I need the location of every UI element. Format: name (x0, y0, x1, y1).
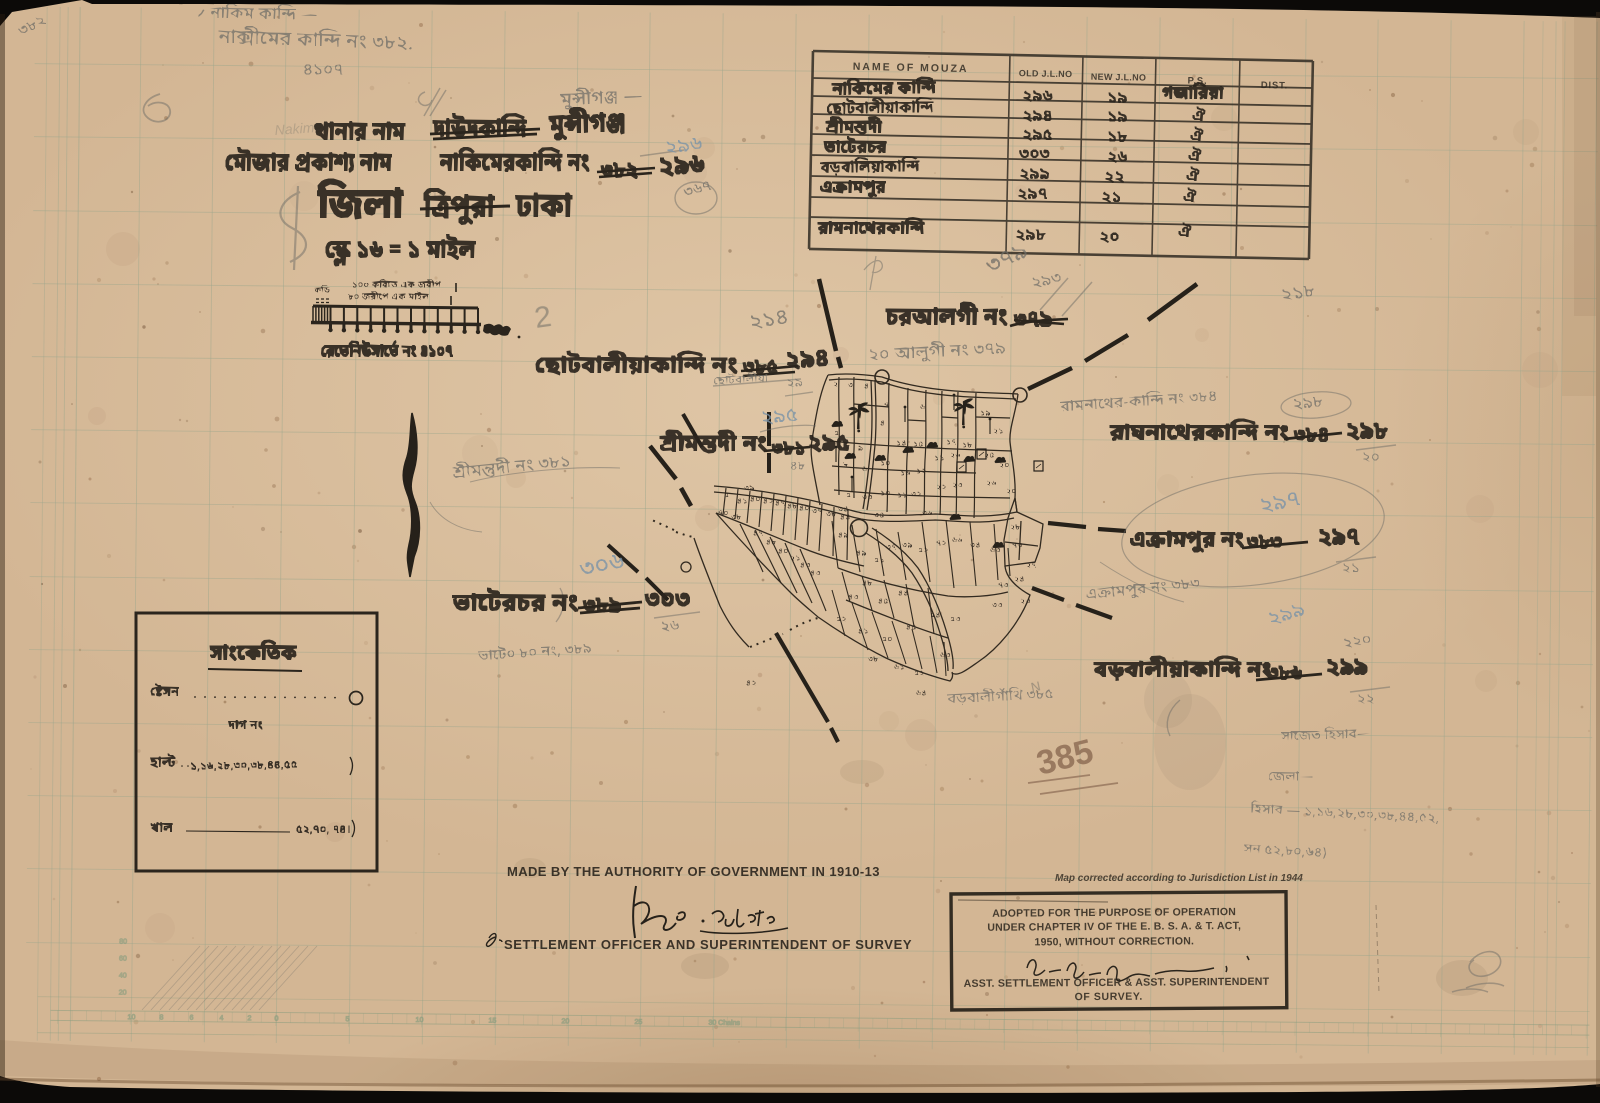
svg-text:10: 10 (128, 1014, 136, 1021)
svg-text:30 Chains: 30 Chains (708, 1020, 740, 1027)
svg-text:2: 2 (532, 300, 553, 335)
svg-text:25: 25 (635, 1019, 643, 1026)
svg-text:UNDER CHAPTER IV OF THE E: UNDER CHAPTER IV OF THE E. B. S. A. & T.… (987, 920, 1241, 934)
svg-text:DIST.: DIST. (1261, 80, 1288, 92)
svg-text:5: 5 (345, 1016, 349, 1023)
svg-text:40: 40 (119, 972, 127, 979)
svg-text:20: 20 (562, 1018, 570, 1025)
svg-text:8: 8 (159, 1014, 163, 1021)
svg-text:2: 2 (247, 1015, 251, 1022)
svg-text:10: 10 (416, 1017, 424, 1024)
svg-text:Map corrected according to Jur: Map corrected according to Jurisdiction … (1055, 873, 1303, 884)
svg-text:4: 4 (219, 1015, 223, 1022)
svg-text:ADOPTED FOR THE PURPOSE OF: ADOPTED FOR THE PURPOSE OF OPERATION (992, 906, 1236, 920)
svg-text:1950, WITHOUT CORRECTION.: 1950, WITHOUT CORRECTION. (1034, 935, 1194, 948)
svg-text:OF SURVEY.: OF SURVEY. (1075, 991, 1143, 1003)
svg-text:15: 15 (489, 1018, 497, 1025)
svg-text:MADE BY THE AUTHORITY OF GOVER: MADE BY THE AUTHORITY OF GOVERNMENT IN 1… (507, 864, 880, 879)
svg-text:SETTLEMENT OFFICER AND SUPERIN: SETTLEMENT OFFICER AND SUPERINTENDENT OF… (504, 937, 912, 952)
svg-text:80: 80 (119, 938, 127, 945)
svg-text:0: 0 (274, 1015, 278, 1022)
svg-text:NEW J.L.NO: NEW J.L.NO (1091, 72, 1147, 83)
svg-text:60: 60 (119, 955, 127, 962)
svg-text:6: 6 (189, 1015, 193, 1022)
svg-text:OLD J.L.NO: OLD J.L.NO (1019, 68, 1073, 79)
svg-text:20: 20 (119, 989, 127, 996)
svg-text:NAME OF MOUZA: NAME OF MOUZA (853, 61, 969, 75)
